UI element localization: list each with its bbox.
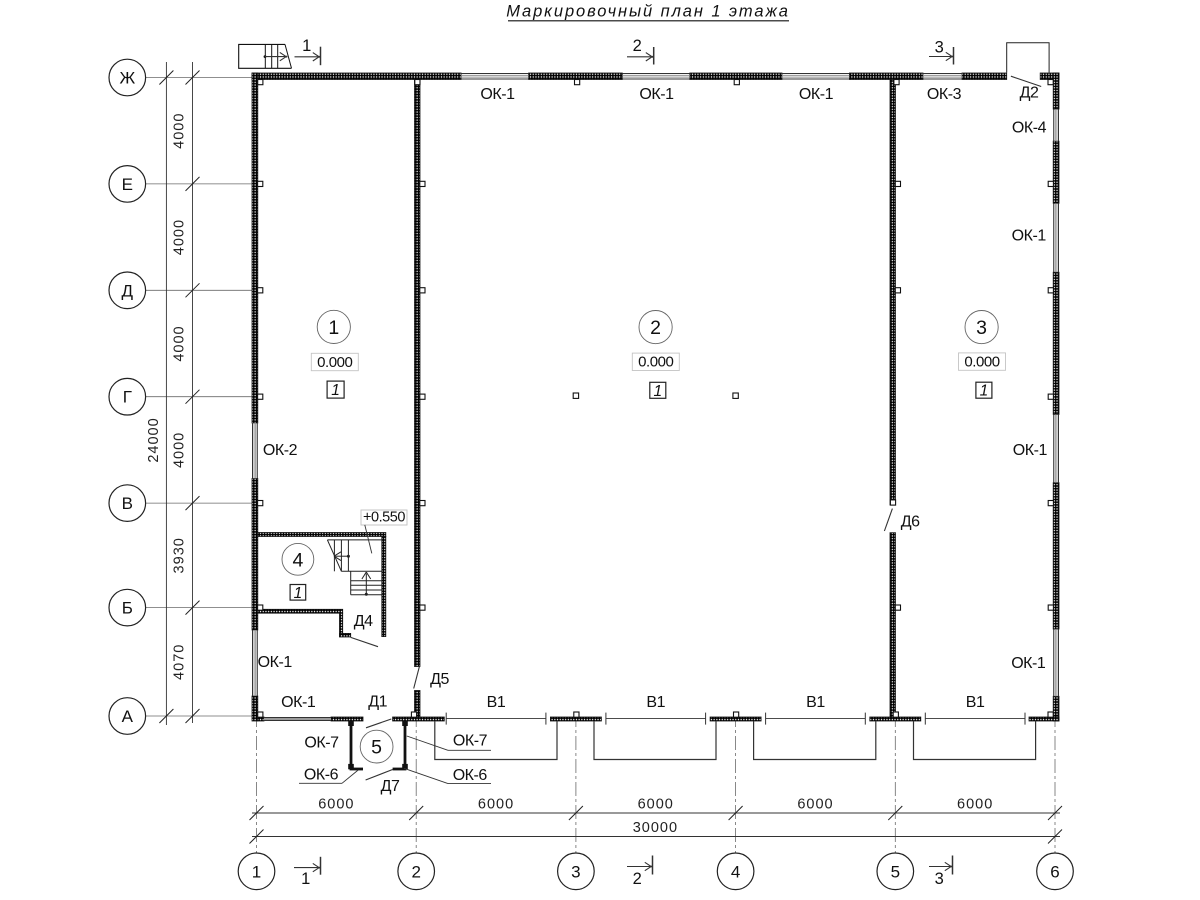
svg-text:4: 4 xyxy=(731,862,740,881)
svg-text:3: 3 xyxy=(571,862,580,881)
svg-text:ОК-1: ОК-1 xyxy=(1011,655,1046,672)
svg-text:1: 1 xyxy=(294,585,303,602)
svg-text:6000: 6000 xyxy=(318,797,354,813)
svg-text:4000: 4000 xyxy=(172,432,188,468)
svg-text:ОК-1: ОК-1 xyxy=(799,86,834,103)
svg-text:+0.550: +0.550 xyxy=(363,510,405,526)
svg-text:1: 1 xyxy=(301,870,310,888)
svg-text:3: 3 xyxy=(935,39,944,57)
svg-text:1: 1 xyxy=(302,37,311,55)
svg-text:ОК-7: ОК-7 xyxy=(304,735,339,752)
svg-text:4: 4 xyxy=(292,549,303,571)
svg-text:ОК-1: ОК-1 xyxy=(281,694,316,711)
svg-text:Д5: Д5 xyxy=(430,671,449,688)
svg-text:В1: В1 xyxy=(806,694,825,711)
svg-text:А: А xyxy=(122,707,134,726)
svg-text:В1: В1 xyxy=(646,694,665,711)
svg-text:24000: 24000 xyxy=(146,417,162,462)
svg-text:Г: Г xyxy=(123,388,132,407)
svg-text:ОК-4: ОК-4 xyxy=(1012,120,1047,137)
svg-text:Маркировочный план 1 этажа: Маркировочный план 1 этажа xyxy=(506,3,790,21)
svg-text:ОК-1: ОК-1 xyxy=(1013,442,1048,459)
svg-text:В1: В1 xyxy=(966,694,985,711)
svg-text:Ж: Ж xyxy=(119,69,135,88)
svg-text:0.000: 0.000 xyxy=(638,354,673,371)
svg-text:ОК-1: ОК-1 xyxy=(480,86,515,103)
svg-text:3: 3 xyxy=(976,317,987,339)
svg-text:ОК-3: ОК-3 xyxy=(927,86,962,103)
svg-text:Е: Е xyxy=(122,175,133,194)
svg-text:4070: 4070 xyxy=(172,644,188,680)
svg-text:6000: 6000 xyxy=(478,797,514,813)
svg-text:Д6: Д6 xyxy=(901,514,920,531)
svg-text:3930: 3930 xyxy=(172,537,188,573)
svg-text:2: 2 xyxy=(411,862,420,881)
svg-text:В: В xyxy=(122,494,133,513)
svg-text:ОК-6: ОК-6 xyxy=(453,767,488,784)
svg-text:ОК-1: ОК-1 xyxy=(258,654,293,671)
svg-text:ОК-1: ОК-1 xyxy=(639,86,674,103)
svg-text:ОК-7: ОК-7 xyxy=(453,733,488,750)
svg-text:Д7: Д7 xyxy=(381,778,400,795)
svg-text:1: 1 xyxy=(653,383,662,400)
svg-text:Д: Д xyxy=(122,281,134,300)
svg-text:6: 6 xyxy=(1050,862,1059,881)
svg-text:6000: 6000 xyxy=(957,797,993,813)
svg-text:1: 1 xyxy=(252,862,261,881)
svg-text:1: 1 xyxy=(980,383,989,400)
svg-text:4000: 4000 xyxy=(172,113,188,149)
svg-text:2: 2 xyxy=(633,37,642,55)
svg-text:Б: Б xyxy=(122,599,133,618)
svg-text:0.000: 0.000 xyxy=(964,354,999,371)
svg-text:0.000: 0.000 xyxy=(317,354,352,371)
svg-text:1: 1 xyxy=(328,317,339,339)
svg-text:В1: В1 xyxy=(487,694,506,711)
svg-text:ОК-1: ОК-1 xyxy=(1012,228,1047,245)
svg-text:2: 2 xyxy=(633,870,642,888)
svg-text:3: 3 xyxy=(935,870,944,888)
svg-text:4000: 4000 xyxy=(172,219,188,255)
svg-text:Д4: Д4 xyxy=(354,613,373,630)
svg-text:Д1: Д1 xyxy=(368,694,387,711)
svg-text:1: 1 xyxy=(331,382,340,399)
svg-text:6000: 6000 xyxy=(797,797,833,813)
svg-text:5: 5 xyxy=(891,862,900,881)
svg-text:30000: 30000 xyxy=(633,820,678,836)
svg-text:ОК-2: ОК-2 xyxy=(263,442,298,459)
svg-text:Д2: Д2 xyxy=(1020,85,1039,102)
svg-text:6000: 6000 xyxy=(638,797,674,813)
svg-text:2: 2 xyxy=(650,317,661,339)
svg-text:4000: 4000 xyxy=(172,325,188,361)
svg-text:ОК-6: ОК-6 xyxy=(304,767,339,784)
svg-text:5: 5 xyxy=(371,737,382,759)
